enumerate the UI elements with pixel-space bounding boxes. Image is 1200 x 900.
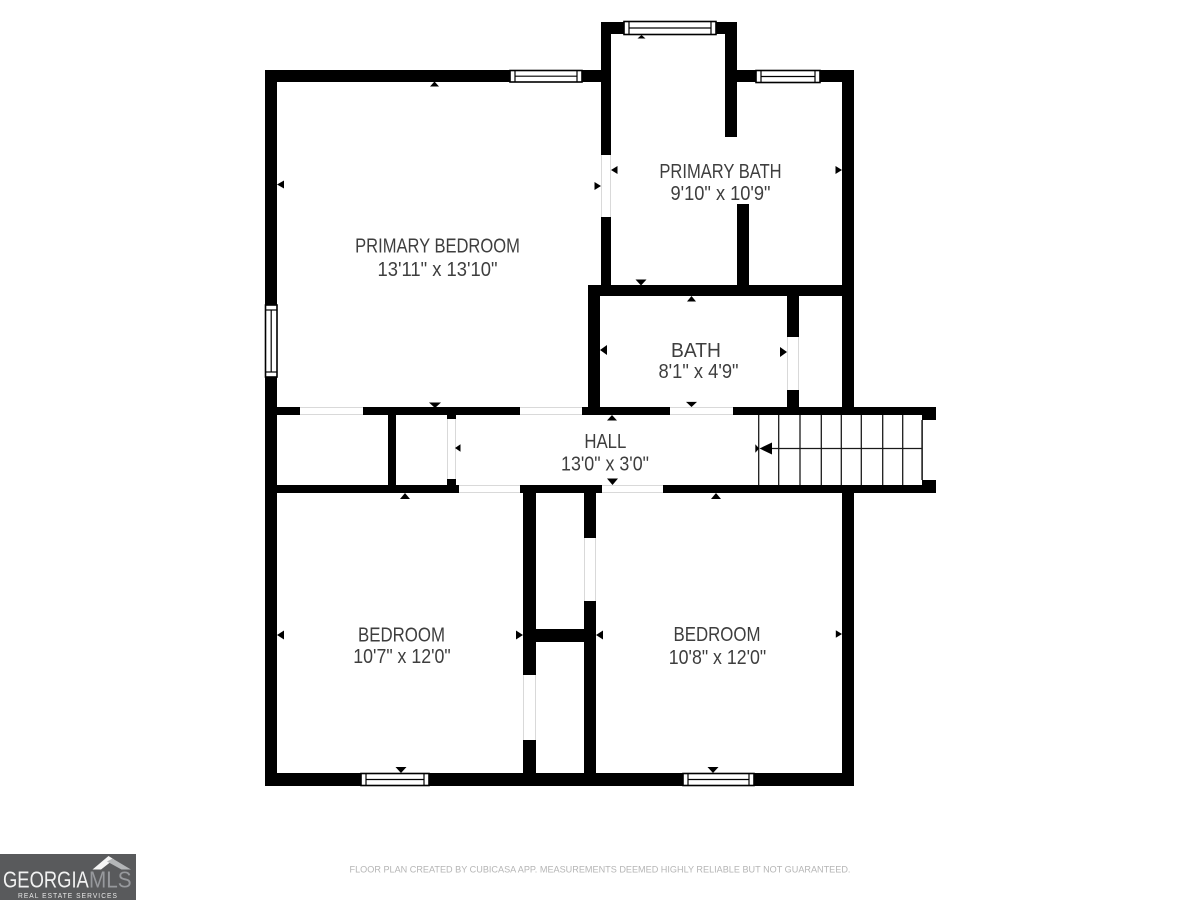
svg-text:8'1" x 4'9": 8'1" x 4'9"	[659, 360, 739, 383]
svg-text:10'7" x 12'0": 10'7" x 12'0"	[353, 646, 450, 668]
svg-text:HALL: HALL	[584, 429, 626, 452]
svg-text:REAL ESTATE SERVICES: REAL ESTATE SERVICES	[18, 891, 118, 900]
svg-text:13'11" x 13'10": 13'11" x 13'10"	[378, 258, 498, 281]
svg-text:13'0" x 3'0": 13'0" x 3'0"	[561, 453, 649, 475]
svg-text:PRIMARY BEDROOM: PRIMARY BEDROOM	[355, 234, 520, 257]
svg-text:PRIMARY BATH: PRIMARY BATH	[659, 159, 781, 182]
svg-text:BEDROOM: BEDROOM	[358, 623, 445, 646]
svg-text:10'8" x 12'0": 10'8" x 12'0"	[669, 647, 766, 669]
svg-text:MLS: MLS	[89, 866, 132, 892]
svg-text:GEORGIA: GEORGIA	[3, 868, 89, 893]
svg-text:BEDROOM: BEDROOM	[674, 622, 761, 645]
svg-text:FLOOR PLAN CREATED BY CUBICASA: FLOOR PLAN CREATED BY CUBICASA APP. MEAS…	[350, 864, 851, 874]
svg-text:9'10" x 10'9": 9'10" x 10'9"	[671, 182, 771, 205]
svg-text:BATH: BATH	[671, 339, 721, 362]
